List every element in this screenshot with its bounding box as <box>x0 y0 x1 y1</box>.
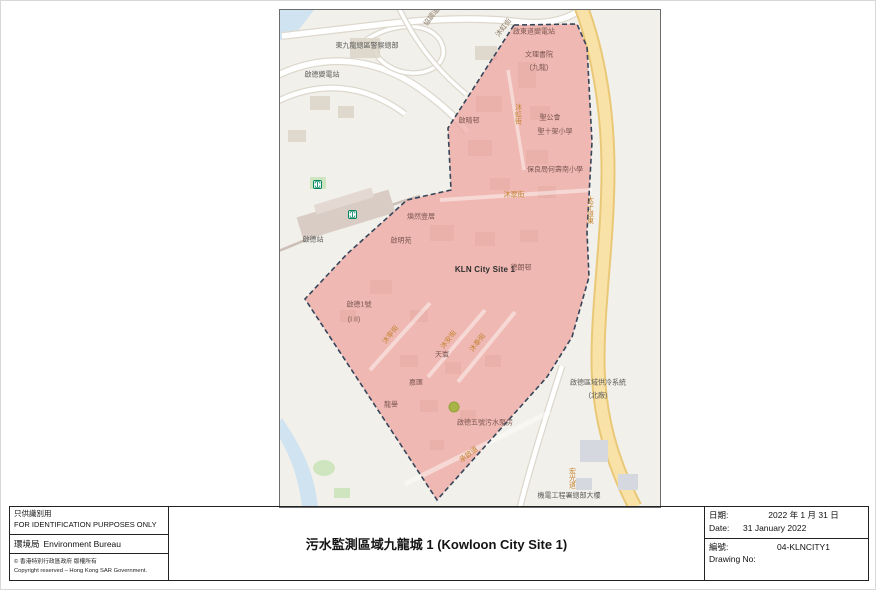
date-label-en: Date: <box>709 522 743 535</box>
drawing-sheet: 東九龍總區警察總部啟德變電站協調道沐虹街啟東道變電站文理書院(九龍)啟晴邨沐虹街… <box>0 0 876 590</box>
title-block: 只供識別用 FOR IDENTIFICATION PURPOSES ONLY 環… <box>9 506 869 581</box>
map-label-skh-line2: 聖十架小學 <box>538 129 573 136</box>
map-label-k-city: 嘉匯 <box>409 380 423 387</box>
copyright-row: © 香港特別行政區政府 版權所有 Copyright reserved – Ho… <box>10 554 168 580</box>
drawing-number-rows: 編號: 04-KLNCITY1 Drawing No: <box>705 539 868 581</box>
map-label-sky-tower: 天寰 <box>435 352 449 359</box>
map-label-police-headquarters: 東九龍總區警察總部 <box>336 43 399 50</box>
restriction-note: 只供識別用 FOR IDENTIFICATION PURPOSES ONLY <box>10 507 168 535</box>
page-title: 污水監測區域九龍城 1 (Kowloon City Site 1) <box>306 534 567 553</box>
map-label-shing-kai-road: 承啟道 <box>459 446 480 464</box>
map-label-kai-ming-court: 啟明苑 <box>391 238 412 245</box>
map-label-site-name: KLN City Site 1 <box>455 266 515 274</box>
title-block-right: 日期: 2022 年 1 月 31 日 Date: 31 January 202… <box>704 507 868 580</box>
map-label-kai-tak-substation: 啟德變電站 <box>305 72 340 79</box>
copyright-en: Copyright reserved – Hong Kong SAR Gover… <box>14 567 164 576</box>
map-label-one-kai-tak-line2: (I II) <box>348 317 360 324</box>
restriction-zh: 只供識別用 <box>14 509 164 520</box>
map-label-cognitio-college-line2: (九龍) <box>530 65 549 72</box>
map-label-tak-long-estate: 德朗邨 <box>511 265 532 272</box>
title-block-center: 污水監測區域九龍城 1 (Kowloon City Site 1) <box>169 507 704 580</box>
map-label-muk-tai-street: 沐泰街 <box>469 333 487 354</box>
map-label-vibe-centro: 龍譽 <box>384 402 398 409</box>
map-label-muk-ning-street: 沐寧街 <box>382 325 400 346</box>
map-label-prince-edward-road-east: 太子道東 <box>587 196 594 224</box>
bureau-name-en: Environment Bureau <box>44 539 122 549</box>
mtr-station-icon <box>348 210 357 219</box>
map-label-kai-ching-estate: 啟晴邨 <box>459 118 480 125</box>
map-label-muk-chui-street: 沐翠街 <box>504 192 525 199</box>
title-block-left: 只供識別用 FOR IDENTIFICATION PURPOSES ONLY 環… <box>10 507 169 580</box>
map-label-emsd-headquarters: 機電工程署總部大樓 <box>538 493 601 500</box>
map-label-district-cooling-line2: (北廠) <box>589 393 608 400</box>
drawing-number-value: 04-KLNCITY1 <box>743 541 864 554</box>
map-label-kai-tak-no5-sewage-pumping-station: 啟德五號污水泵房 <box>457 420 513 427</box>
map-label-hip-tiu-road: 協調道 <box>423 9 441 27</box>
restriction-en: FOR IDENTIFICATION PURPOSES ONLY <box>14 520 164 531</box>
map-label-kai-tak-station: 啟德站 <box>303 237 324 244</box>
map-label-plk-school: 保良局何壽南小學 <box>527 167 583 174</box>
map-panel: 東九龍總區警察總部啟德變電站協調道沐虹街啟東道變電站文理書院(九龍)啟晴邨沐虹街… <box>279 9 661 508</box>
mtr-station-icon <box>313 180 322 189</box>
map-label-de-novo: 煥然壹居 <box>407 214 435 221</box>
map-label-wang-kwong-road: 宏光道 <box>569 468 576 489</box>
date-value-en: 31 January 2022 <box>743 522 864 535</box>
map-label-layer: 東九龍總區警察總部啟德變電站協調道沐虹街啟東道變電站文理書院(九龍)啟晴邨沐虹街… <box>280 10 660 507</box>
date-value-zh: 2022 年 1 月 31 日 <box>743 509 864 522</box>
map-label-cognitio-college-line1: 文理書院 <box>525 52 553 59</box>
date-label-zh: 日期: <box>709 509 743 522</box>
copyright-zh: © 香港特別行政區政府 版權所有 <box>14 558 164 567</box>
date-rows: 日期: 2022 年 1 月 31 日 Date: 31 January 202… <box>705 507 868 539</box>
map-label-skh-line1: 聖公會 <box>540 115 561 122</box>
drawing-label-en: Drawing No: <box>709 553 756 566</box>
map-label-muk-hung-street-vertical: 沐虹街 <box>515 104 522 125</box>
map-label-one-kai-tak-line1: 啟德1號 <box>347 302 372 309</box>
map-label-muk-on-street: 沐安街 <box>440 330 458 351</box>
map-label-district-cooling-line1: 啟德區域供冷系統 <box>570 380 626 387</box>
map-label-muk-hung-street-top: 沐虹街 <box>495 18 513 39</box>
bureau-row: 環境局 Environment Bureau <box>10 535 168 554</box>
bureau-name-zh: 環境局 <box>14 538 40 550</box>
number-label-zh: 編號: <box>709 541 743 554</box>
map-label-kai-tung-road-substation: 啟東道變電站 <box>513 29 555 36</box>
